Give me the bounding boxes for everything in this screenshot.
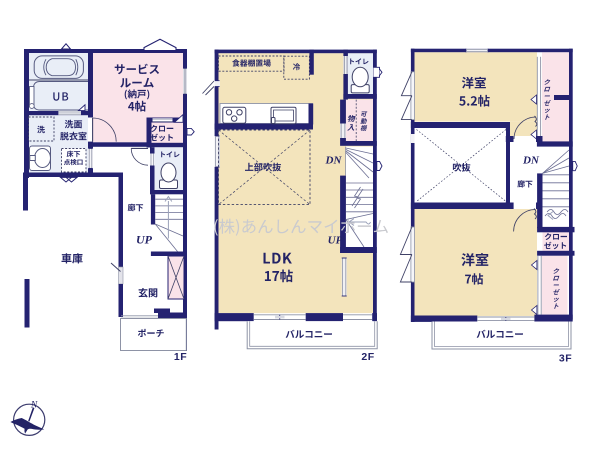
svg-text:UP: UP (136, 233, 153, 247)
svg-text:DN: DN (522, 155, 540, 167)
svg-text:N: N (30, 401, 38, 411)
svg-text:UP: UP (328, 235, 343, 247)
svg-text:DN: DN (325, 155, 343, 167)
svg-text:2F: 2F (361, 351, 374, 363)
svg-text:3F: 3F (559, 353, 572, 365)
svg-text:1F: 1F (174, 351, 187, 363)
